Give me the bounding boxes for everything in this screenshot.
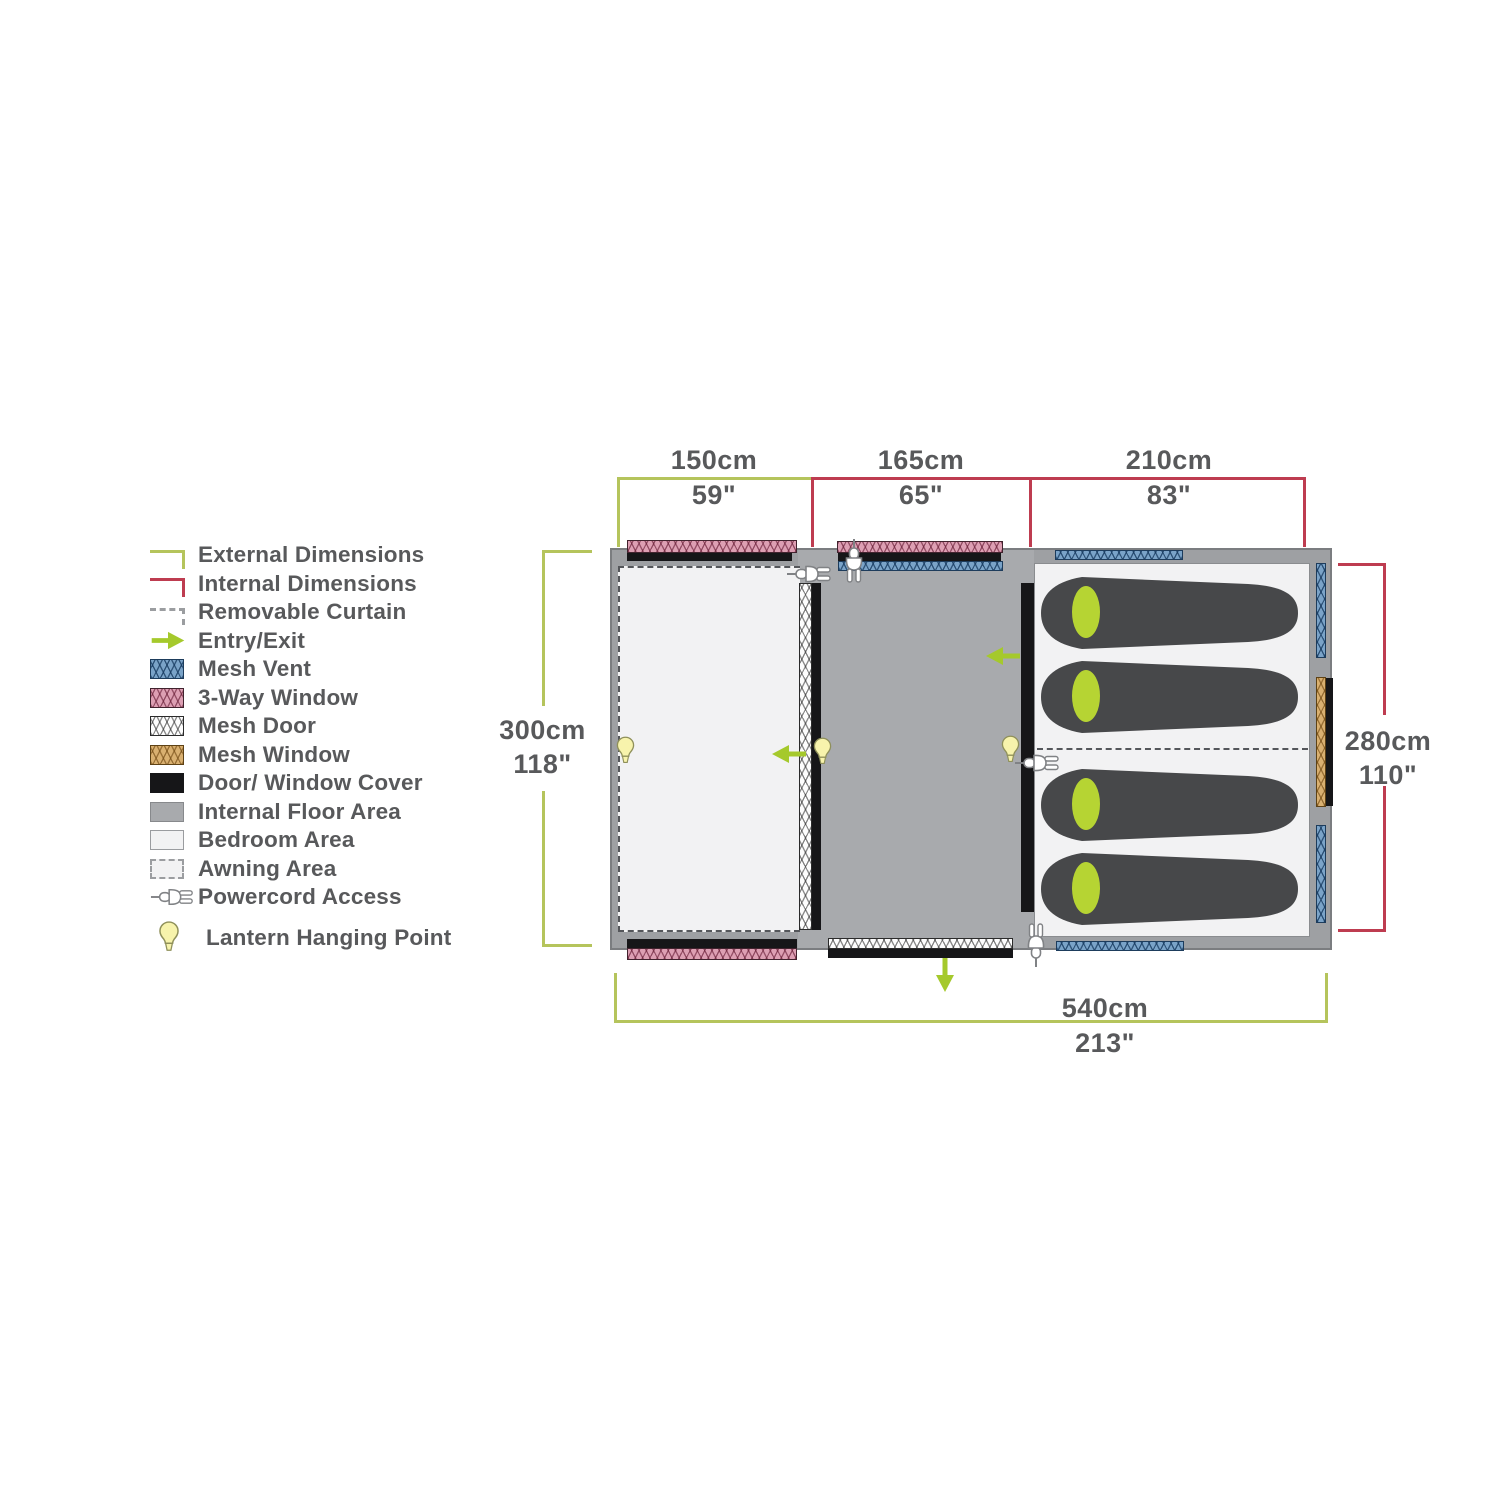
left-bracket-external-300-lower bbox=[542, 791, 592, 947]
three-way-window-awning-bottom bbox=[627, 948, 797, 960]
legend-row-awning-area: Awning Area bbox=[150, 855, 451, 884]
dim-left-in: 118" bbox=[455, 750, 630, 778]
legend-label: Removable Curtain bbox=[198, 599, 406, 625]
entry-exit-arrow-mesh-door bbox=[770, 742, 808, 766]
sleeping-bag-1 bbox=[1036, 574, 1306, 652]
mesh-door-swatch-icon bbox=[150, 716, 198, 736]
legend-label: Mesh Window bbox=[198, 742, 350, 768]
legend-row-entry-exit: Entry/Exit bbox=[150, 627, 451, 656]
powercord-access-top-left bbox=[786, 561, 834, 587]
mesh-vent-right-top bbox=[1316, 563, 1326, 658]
legend-row-mesh-window: Mesh Window bbox=[150, 741, 451, 770]
three-way-window-swatch-icon bbox=[150, 688, 198, 708]
legend-row-external-dimensions: External Dimensions bbox=[150, 541, 451, 570]
lantern-hanging-point-awning bbox=[616, 736, 635, 767]
legend-row-lantern: Lantern Hanging Point bbox=[150, 921, 451, 955]
powercord-plug-icon bbox=[150, 884, 198, 910]
lantern-bulb-icon bbox=[150, 921, 206, 955]
legend-label: Internal Floor Area bbox=[198, 799, 401, 825]
bottom-bracket-external-540 bbox=[614, 973, 1328, 1023]
dim-bottom-cm: 540cm bbox=[1005, 994, 1205, 1022]
dim-top-2-cm: 165cm bbox=[841, 446, 1001, 474]
powercord-access-bottom bbox=[1023, 916, 1049, 968]
internal-floor-area bbox=[798, 550, 1034, 948]
door-cover-divider-2 bbox=[1021, 583, 1034, 912]
removable-curtain-icon bbox=[150, 600, 198, 625]
legend-row-bedroom-area: Bedroom Area bbox=[150, 826, 451, 855]
legend: External Dimensions Internal Dimensions … bbox=[150, 541, 451, 955]
legend-label: Entry/Exit bbox=[198, 628, 305, 654]
dim-left-cm: 300cm bbox=[455, 716, 630, 744]
external-dimensions-bracket-icon bbox=[150, 542, 198, 569]
sleeping-bag-4 bbox=[1036, 850, 1306, 928]
right-bracket-internal-280-lower bbox=[1338, 786, 1386, 932]
door-cover-floor-bottom bbox=[828, 949, 1013, 958]
dim-top-2-in: 65" bbox=[841, 481, 1001, 509]
legend-label: Awning Area bbox=[198, 856, 336, 882]
legend-label: Internal Dimensions bbox=[198, 571, 417, 597]
entry-exit-arrow-front-door bbox=[933, 956, 957, 994]
sleeping-bag-3 bbox=[1036, 766, 1306, 844]
right-bracket-internal-280-upper bbox=[1338, 563, 1386, 715]
mesh-vent-right-bottom bbox=[1316, 825, 1326, 923]
entry-exit-arrow-bedroom bbox=[984, 644, 1022, 668]
dim-bottom-in: 213" bbox=[1005, 1029, 1205, 1057]
legend-row-mesh-door: Mesh Door bbox=[150, 712, 451, 741]
legend-row-mesh-vent: Mesh Vent bbox=[150, 655, 451, 684]
internal-dimensions-bracket-icon bbox=[150, 570, 198, 597]
legend-label: Mesh Vent bbox=[198, 656, 311, 682]
powercord-access-bedroom-mid bbox=[1014, 750, 1062, 776]
window-cover-awning-top bbox=[627, 553, 792, 561]
dim-top-3-in: 83" bbox=[1089, 481, 1249, 509]
entry-exit-arrow-icon bbox=[150, 629, 198, 652]
mesh-window-right bbox=[1316, 677, 1326, 807]
legend-row-removable-curtain: Removable Curtain bbox=[150, 598, 451, 627]
legend-label: Bedroom Area bbox=[198, 827, 355, 853]
removable-curtain-line bbox=[1037, 748, 1308, 750]
mesh-window-swatch-icon bbox=[150, 745, 198, 765]
internal-floor-swatch-icon bbox=[150, 802, 198, 822]
window-cover-right bbox=[1326, 678, 1333, 806]
tent-floorplan-diagram: External Dimensions Internal Dimensions … bbox=[0, 0, 1500, 1500]
awning-area-swatch-icon bbox=[150, 859, 198, 879]
three-way-window-awning-top bbox=[627, 540, 797, 553]
bedroom-area-swatch-icon bbox=[150, 830, 198, 850]
legend-row-powercord-access: Powercord Access bbox=[150, 883, 451, 912]
legend-row-internal-floor: Internal Floor Area bbox=[150, 798, 451, 827]
mesh-vent-bedroom-bottom bbox=[1056, 941, 1184, 951]
mesh-vent-swatch-icon bbox=[150, 659, 198, 679]
sleeping-bag-2 bbox=[1036, 658, 1306, 736]
legend-row-internal-dimensions: Internal Dimensions bbox=[150, 570, 451, 599]
lantern-hanging-point-floor-left bbox=[813, 737, 832, 768]
mesh-door-floor-bottom bbox=[828, 938, 1013, 949]
window-cover-awning-bottom bbox=[627, 939, 797, 948]
dim-top-1-in: 59" bbox=[634, 481, 794, 509]
dim-top-1-cm: 150cm bbox=[634, 446, 794, 474]
legend-label: Mesh Door bbox=[198, 713, 316, 739]
legend-label: Lantern Hanging Point bbox=[206, 925, 451, 951]
powercord-access-top-vertical bbox=[841, 538, 867, 590]
legend-label: External Dimensions bbox=[198, 542, 424, 568]
legend-row-3way-window: 3-Way Window bbox=[150, 684, 451, 713]
legend-label: 3-Way Window bbox=[198, 685, 358, 711]
mesh-vent-bedroom-top bbox=[1055, 550, 1183, 560]
legend-label: Powercord Access bbox=[198, 884, 402, 910]
dim-top-3-cm: 210cm bbox=[1089, 446, 1249, 474]
legend-label: Door/ Window Cover bbox=[198, 770, 423, 796]
door-window-cover-swatch-icon bbox=[150, 773, 198, 793]
left-bracket-external-300-upper bbox=[542, 550, 592, 706]
legend-row-door-window-cover: Door/ Window Cover bbox=[150, 769, 451, 798]
